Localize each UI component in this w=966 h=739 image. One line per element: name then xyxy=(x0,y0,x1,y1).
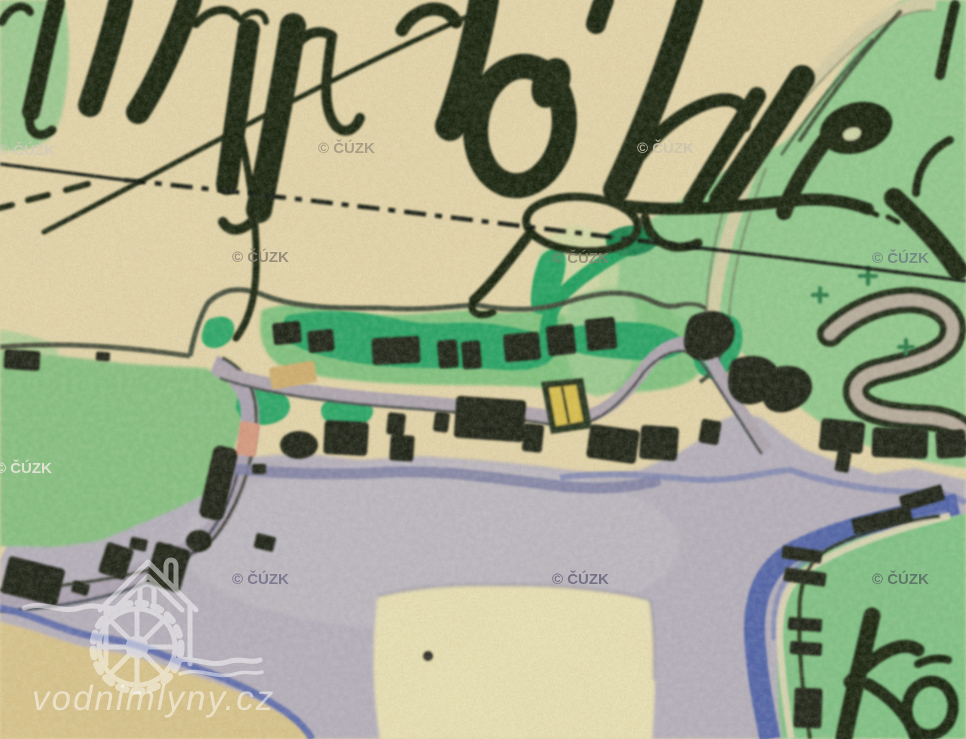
svg-text:vodnimlyny.cz: vodnimlyny.cz xyxy=(32,679,275,718)
svg-text:© ČÚZK: © ČÚZK xyxy=(552,249,609,267)
svg-text:© ČÚZK: © ČÚZK xyxy=(637,139,694,157)
svg-text:© ČÚZK: © ČÚZK xyxy=(232,248,289,266)
svg-text:© ČÚZK: © ČÚZK xyxy=(552,570,609,588)
svg-text:© ČÚZK: © ČÚZK xyxy=(872,570,929,588)
svg-text:© ČÚZK: © ČÚZK xyxy=(318,139,375,157)
svg-text:© ČÚZK: © ČÚZK xyxy=(872,249,929,267)
svg-text:© ČÚZK: © ČÚZK xyxy=(232,570,289,588)
svg-text:© ČÚZK: © ČÚZK xyxy=(0,459,52,477)
svg-text:© ČÚZK: © ČÚZK xyxy=(0,141,55,159)
